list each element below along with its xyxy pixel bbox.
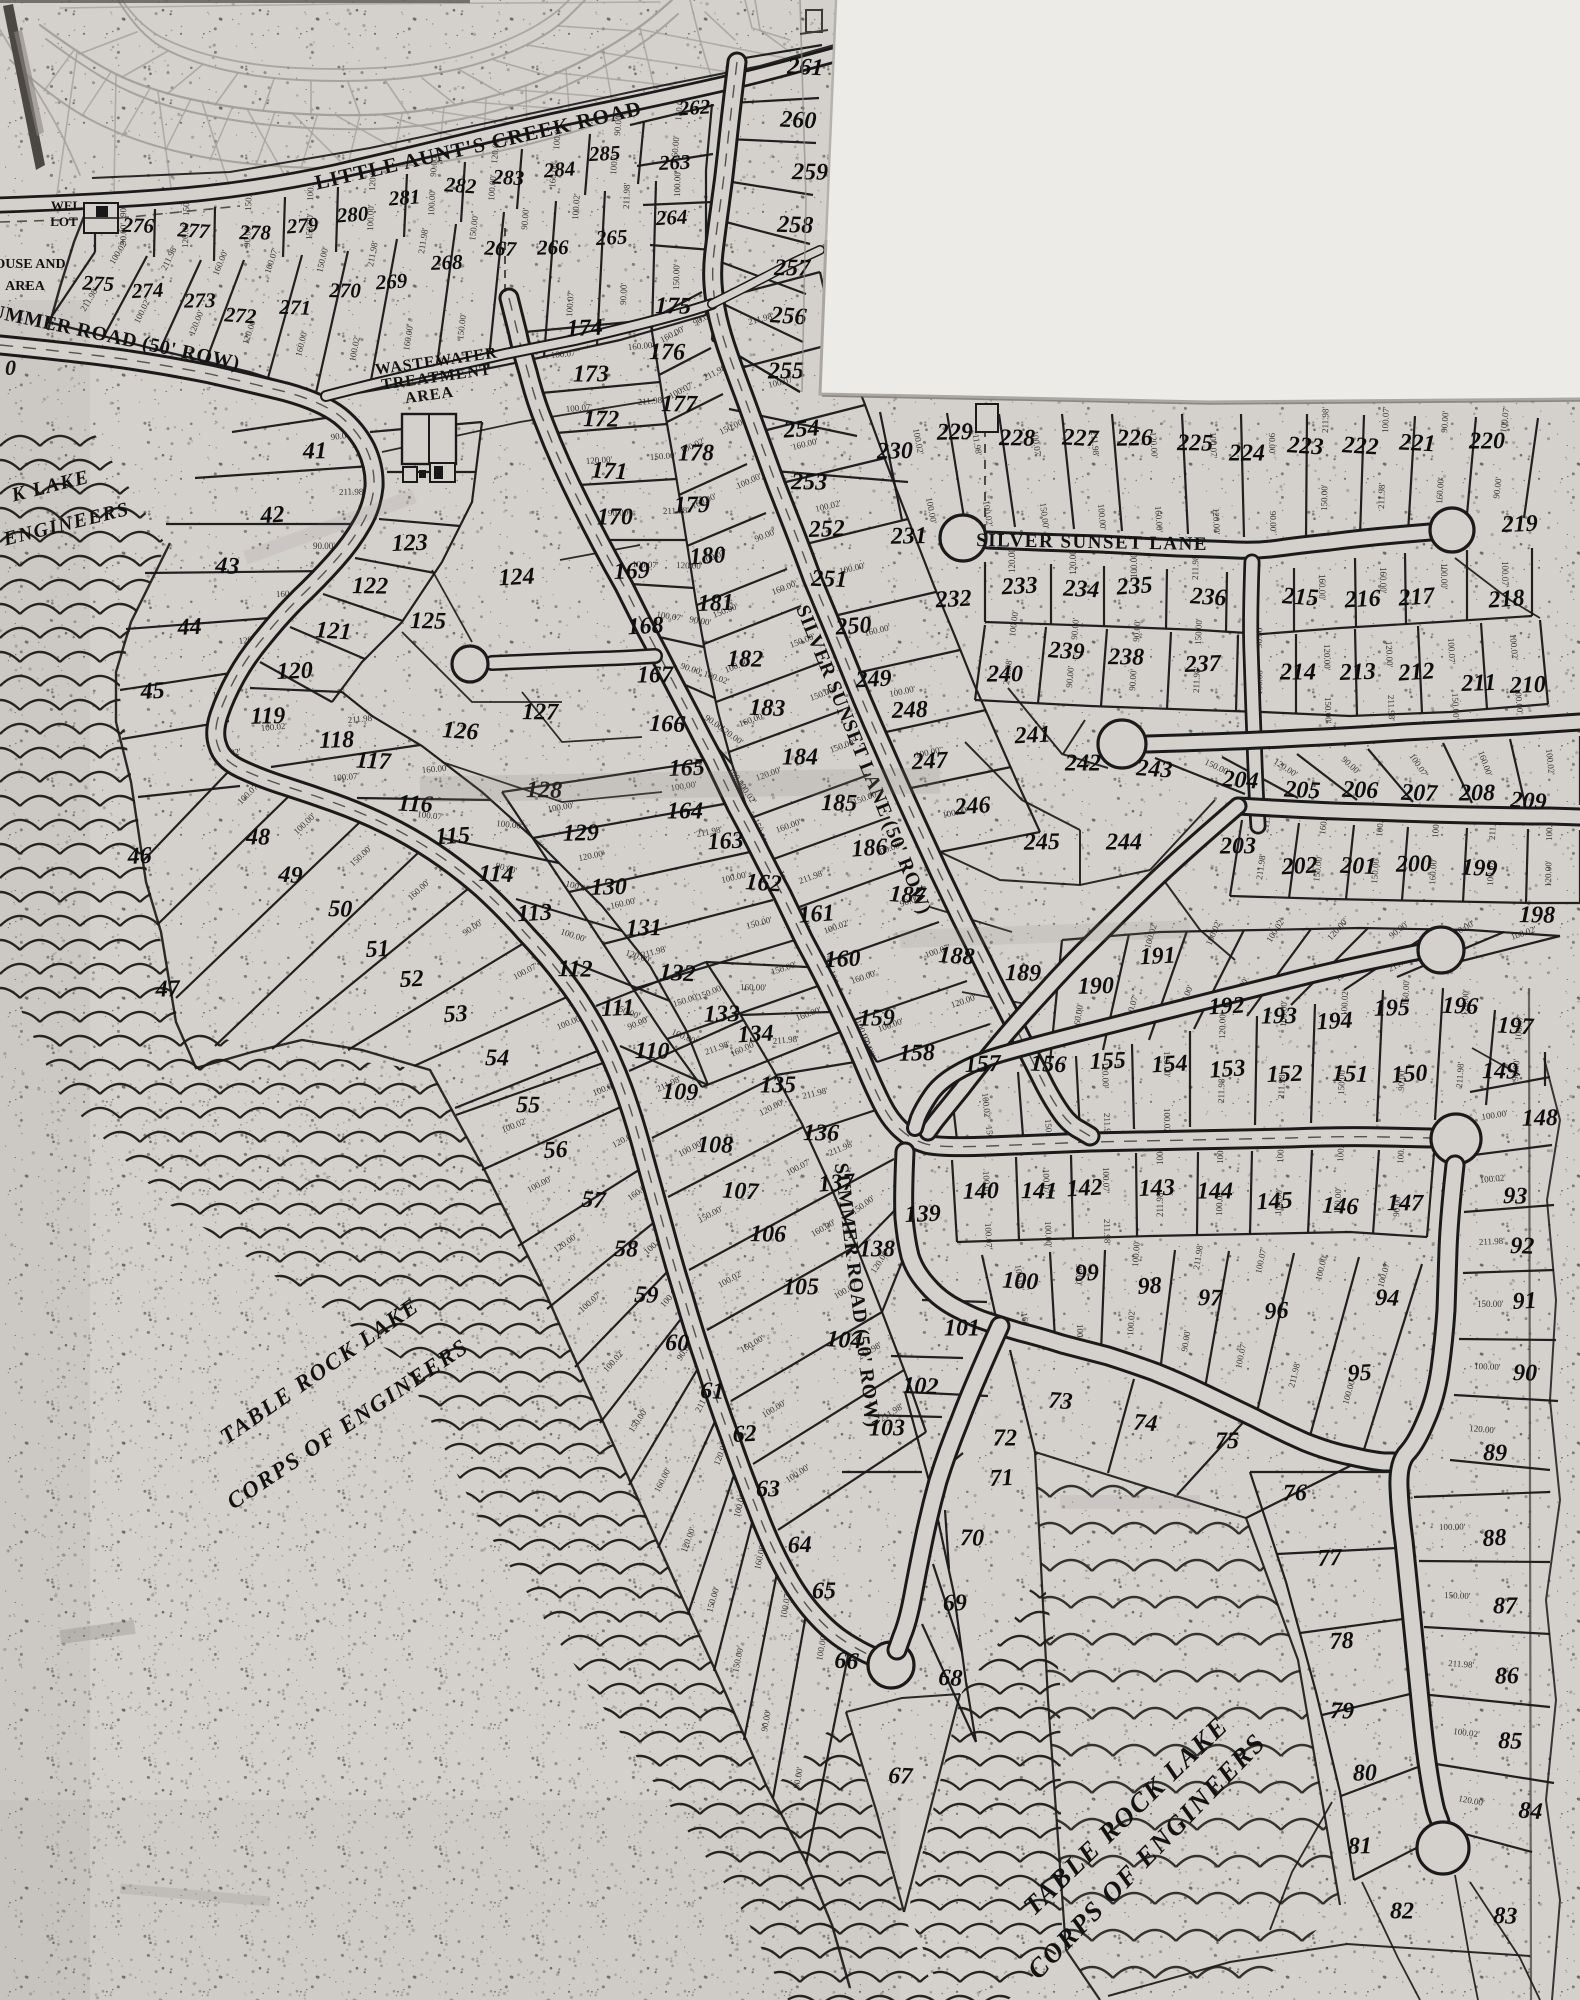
svg-text:141: 141 <box>1021 1178 1057 1205</box>
svg-text:97: 97 <box>1198 1285 1223 1311</box>
svg-text:184: 184 <box>782 744 818 770</box>
svg-text:65: 65 <box>812 1578 836 1604</box>
svg-text:86: 86 <box>1495 1663 1519 1689</box>
svg-text:211.98': 211.98' <box>1102 1219 1112 1246</box>
svg-text:139: 139 <box>904 1201 941 1228</box>
svg-text:100.02': 100.02' <box>1125 1309 1137 1336</box>
svg-text:100.00': 100.00' <box>1043 1221 1054 1248</box>
svg-text:108: 108 <box>697 1132 733 1159</box>
svg-text:273: 273 <box>183 288 216 313</box>
svg-text:227: 227 <box>1061 424 1100 452</box>
svg-text:180: 180 <box>689 542 727 570</box>
svg-text:211.98': 211.98' <box>1386 695 1397 722</box>
svg-text:279: 279 <box>285 212 320 238</box>
svg-text:248: 248 <box>890 697 928 724</box>
svg-text:254: 254 <box>782 415 821 444</box>
svg-text:266: 266 <box>536 235 569 260</box>
svg-text:175: 175 <box>655 293 691 320</box>
svg-text:160.00': 160.00' <box>740 982 767 992</box>
svg-text:150.00': 150.00' <box>649 450 676 462</box>
svg-text:167: 167 <box>637 662 674 688</box>
svg-text:211.98': 211.98' <box>1448 1658 1475 1670</box>
svg-text:169: 169 <box>613 558 650 585</box>
svg-text:115: 115 <box>435 823 471 851</box>
svg-text:200: 200 <box>1395 851 1432 878</box>
svg-text:98: 98 <box>1137 1273 1162 1300</box>
svg-text:197: 197 <box>1497 1012 1535 1040</box>
svg-text:112: 112 <box>558 956 593 983</box>
svg-text:222: 222 <box>1341 432 1380 461</box>
svg-text:87: 87 <box>1493 1593 1518 1619</box>
svg-text:182: 182 <box>727 646 763 673</box>
svg-text:106: 106 <box>750 1221 786 1248</box>
svg-text:96: 96 <box>1264 1298 1290 1326</box>
svg-text:268: 268 <box>430 250 464 275</box>
svg-text:146: 146 <box>1322 1192 1359 1220</box>
svg-text:131: 131 <box>626 915 662 942</box>
svg-text:209: 209 <box>1509 787 1548 816</box>
svg-text:125: 125 <box>410 608 446 635</box>
svg-text:252: 252 <box>807 516 845 543</box>
svg-text:107: 107 <box>722 1177 760 1205</box>
svg-text:151: 151 <box>1332 1061 1369 1088</box>
svg-text:83: 83 <box>1493 1903 1518 1930</box>
svg-text:66: 66 <box>834 1648 860 1676</box>
svg-text:77: 77 <box>1317 1545 1343 1572</box>
svg-text:144: 144 <box>1197 1178 1233 1204</box>
svg-text:238: 238 <box>1107 644 1144 671</box>
svg-text:224: 224 <box>1228 440 1265 466</box>
svg-text:67: 67 <box>888 1763 914 1790</box>
svg-text:243: 243 <box>1135 755 1174 784</box>
svg-text:75: 75 <box>1215 1428 1239 1454</box>
svg-text:198: 198 <box>1519 902 1555 929</box>
svg-text:204: 204 <box>1221 766 1260 795</box>
svg-text:217: 217 <box>1397 583 1437 612</box>
svg-text:150: 150 <box>1391 1060 1429 1088</box>
svg-text:73: 73 <box>1048 1388 1074 1416</box>
svg-text:150.00': 150.00' <box>1323 697 1333 724</box>
svg-text:126: 126 <box>442 717 480 745</box>
svg-text:90.00': 90.00' <box>1267 433 1277 455</box>
svg-text:120.00': 120.00' <box>1211 508 1222 535</box>
svg-text:152: 152 <box>1266 1061 1303 1088</box>
svg-text:63: 63 <box>756 1476 780 1502</box>
svg-text:117: 117 <box>355 748 392 776</box>
svg-text:85: 85 <box>1498 1728 1523 1755</box>
svg-text:269: 269 <box>374 268 409 294</box>
svg-text:192: 192 <box>1208 992 1245 1020</box>
svg-text:WEL: WEL <box>51 198 82 213</box>
svg-text:145: 145 <box>1256 1187 1293 1215</box>
svg-text:211.98': 211.98' <box>1376 482 1387 509</box>
svg-text:147: 147 <box>1387 1190 1424 1217</box>
svg-text:166: 166 <box>649 711 686 738</box>
svg-text:191: 191 <box>1139 942 1176 970</box>
svg-text:94: 94 <box>1375 1285 1400 1312</box>
svg-text:189: 189 <box>1005 960 1041 987</box>
svg-text:250: 250 <box>834 612 873 641</box>
svg-text:119: 119 <box>250 703 285 730</box>
svg-text:122: 122 <box>352 573 388 600</box>
svg-text:135: 135 <box>760 1072 796 1098</box>
svg-text:55: 55 <box>516 1092 540 1118</box>
svg-text:263: 263 <box>658 150 691 175</box>
svg-text:44: 44 <box>176 614 202 641</box>
svg-text:162: 162 <box>745 869 783 897</box>
svg-text:99: 99 <box>1075 1260 1099 1286</box>
svg-text:82: 82 <box>1390 1898 1414 1924</box>
svg-text:60: 60 <box>665 1330 690 1357</box>
svg-text:120.00': 120.00' <box>1384 641 1395 668</box>
svg-text:176: 176 <box>649 339 685 366</box>
svg-text:79: 79 <box>1330 1698 1354 1724</box>
svg-text:100.07': 100.07' <box>1500 561 1510 588</box>
svg-text:90.00': 90.00' <box>1127 668 1139 691</box>
svg-text:154: 154 <box>1151 1050 1188 1078</box>
svg-text:100.07': 100.07' <box>1446 638 1457 665</box>
svg-text:150.00': 150.00' <box>1477 1299 1504 1309</box>
svg-text:199: 199 <box>1461 854 1498 882</box>
svg-text:136: 136 <box>803 1120 839 1147</box>
svg-text:284: 284 <box>542 156 576 182</box>
svg-text:52: 52 <box>399 966 424 993</box>
svg-text:155: 155 <box>1089 1048 1126 1075</box>
svg-text:140: 140 <box>963 1178 999 1205</box>
svg-text:149: 149 <box>1482 1058 1518 1085</box>
svg-text:OUSE AND: OUSE AND <box>0 257 66 272</box>
svg-text:220: 220 <box>1468 428 1505 454</box>
svg-text:219: 219 <box>1500 511 1538 538</box>
svg-text:160.00': 160.00' <box>1153 505 1165 532</box>
svg-text:158: 158 <box>899 1040 935 1067</box>
svg-text:233: 233 <box>1000 572 1038 600</box>
svg-text:239: 239 <box>1047 637 1086 666</box>
svg-text:100.00': 100.00' <box>426 189 437 216</box>
svg-text:70: 70 <box>960 1525 984 1551</box>
svg-text:48: 48 <box>245 824 270 850</box>
svg-text:274: 274 <box>130 278 164 304</box>
svg-text:270: 270 <box>328 278 361 303</box>
svg-text:89: 89 <box>1483 1440 1507 1466</box>
svg-text:255: 255 <box>767 358 804 384</box>
svg-text:160.00': 160.00' <box>1434 477 1446 504</box>
svg-text:225: 225 <box>1176 430 1213 457</box>
svg-text:109: 109 <box>662 1079 699 1106</box>
svg-text:183: 183 <box>749 695 786 722</box>
svg-text:88: 88 <box>1482 1525 1508 1553</box>
svg-text:267: 267 <box>483 235 518 261</box>
svg-text:172: 172 <box>583 406 619 433</box>
svg-text:178: 178 <box>678 440 714 466</box>
svg-text:134: 134 <box>737 1020 774 1048</box>
svg-text:245: 245 <box>1023 829 1060 856</box>
svg-text:174: 174 <box>566 315 603 342</box>
svg-text:211: 211 <box>1460 670 1497 697</box>
svg-text:265: 265 <box>594 225 628 251</box>
svg-text:159: 159 <box>859 1005 895 1032</box>
svg-text:161: 161 <box>798 900 836 928</box>
svg-text:80: 80 <box>1353 1760 1377 1786</box>
svg-text:150.00': 150.00' <box>671 263 681 290</box>
svg-text:120.00': 120.00' <box>1543 860 1553 887</box>
svg-text:202: 202 <box>1280 852 1318 880</box>
svg-text:215: 215 <box>1281 583 1320 612</box>
svg-text:92: 92 <box>1510 1233 1535 1260</box>
svg-text:203: 203 <box>1219 833 1256 859</box>
svg-text:95: 95 <box>1347 1360 1372 1387</box>
svg-text:0: 0 <box>5 355 16 380</box>
svg-text:91: 91 <box>1512 1288 1537 1315</box>
svg-text:47: 47 <box>154 976 181 1003</box>
svg-text:214: 214 <box>1279 659 1316 685</box>
svg-text:246: 246 <box>953 792 992 821</box>
svg-text:150.00': 150.00' <box>1444 1590 1471 1601</box>
svg-text:193: 193 <box>1261 1003 1297 1029</box>
svg-text:90.00': 90.00' <box>1131 619 1143 642</box>
svg-text:206: 206 <box>1341 777 1379 804</box>
svg-text:90: 90 <box>1513 1360 1537 1386</box>
svg-text:236: 236 <box>1189 583 1228 612</box>
svg-text:251: 251 <box>810 566 848 593</box>
svg-text:100.00': 100.00' <box>1439 563 1449 590</box>
svg-text:61: 61 <box>700 1378 725 1405</box>
svg-text:205: 205 <box>1283 776 1321 804</box>
svg-text:257: 257 <box>773 255 811 282</box>
svg-text:285: 285 <box>587 141 621 167</box>
svg-text:53: 53 <box>443 1001 468 1028</box>
svg-text:AREA: AREA <box>5 279 46 294</box>
svg-text:244: 244 <box>1105 829 1142 855</box>
svg-text:282: 282 <box>443 172 478 198</box>
svg-text:231: 231 <box>890 523 927 550</box>
svg-text:93: 93 <box>1503 1183 1528 1210</box>
svg-text:120.00': 120.00' <box>1322 644 1332 671</box>
svg-text:261: 261 <box>786 53 824 81</box>
svg-text:41: 41 <box>302 438 327 464</box>
svg-text:208: 208 <box>1458 780 1495 806</box>
svg-text:100.00': 100.00' <box>1439 1522 1466 1532</box>
svg-text:102: 102 <box>902 1372 939 1400</box>
svg-text:100.07': 100.07' <box>983 1223 994 1250</box>
svg-text:150.00': 150.00' <box>1450 693 1461 720</box>
svg-text:237: 237 <box>1183 651 1222 678</box>
svg-text:150.00': 150.00' <box>1193 618 1204 645</box>
svg-text:190: 190 <box>1078 973 1114 1000</box>
svg-text:143: 143 <box>1138 1175 1175 1202</box>
svg-text:129: 129 <box>563 820 599 847</box>
svg-text:160: 160 <box>824 945 861 973</box>
svg-text:124: 124 <box>498 563 535 591</box>
svg-text:156: 156 <box>1030 1050 1067 1078</box>
svg-text:201: 201 <box>1339 853 1377 880</box>
svg-text:230: 230 <box>876 438 913 465</box>
svg-text:164: 164 <box>667 798 703 824</box>
svg-text:196: 196 <box>1442 993 1479 1020</box>
svg-text:278: 278 <box>238 220 271 245</box>
svg-text:90.00': 90.00' <box>1069 617 1081 640</box>
svg-text:71: 71 <box>989 1465 1014 1492</box>
svg-text:133: 133 <box>704 1001 740 1028</box>
svg-text:64: 64 <box>787 1532 812 1559</box>
svg-text:264: 264 <box>654 205 688 231</box>
svg-text:148: 148 <box>1522 1105 1558 1132</box>
svg-text:228: 228 <box>998 425 1035 452</box>
svg-text:271: 271 <box>278 295 311 320</box>
svg-text:81: 81 <box>1348 1833 1372 1859</box>
svg-text:171: 171 <box>591 457 628 485</box>
svg-text:181: 181 <box>697 590 734 617</box>
svg-text:58: 58 <box>614 1236 638 1262</box>
svg-text:57: 57 <box>581 1187 608 1215</box>
svg-text:210: 210 <box>1508 672 1546 699</box>
svg-text:168: 168 <box>627 612 664 640</box>
svg-text:211.98': 211.98' <box>1479 1236 1506 1247</box>
svg-text:111: 111 <box>601 995 635 1022</box>
svg-text:51: 51 <box>365 936 390 963</box>
svg-text:277: 277 <box>176 217 212 243</box>
svg-text:211.98': 211.98' <box>1320 406 1330 433</box>
svg-text:45: 45 <box>139 678 165 705</box>
svg-text:229: 229 <box>936 419 973 446</box>
svg-text:179: 179 <box>674 492 710 519</box>
svg-text:213: 213 <box>1338 659 1376 686</box>
svg-text:212: 212 <box>1397 658 1436 687</box>
svg-text:258: 258 <box>776 212 814 239</box>
svg-text:SILVER SUNSET LANE: SILVER SUNSET LANE <box>976 530 1208 555</box>
svg-text:221: 221 <box>1398 429 1436 457</box>
svg-text:218: 218 <box>1487 585 1526 614</box>
svg-text:62: 62 <box>732 1421 757 1448</box>
svg-text:113: 113 <box>517 900 553 928</box>
svg-text:101: 101 <box>944 1315 980 1341</box>
svg-text:260: 260 <box>779 106 817 134</box>
svg-text:56: 56 <box>543 1137 568 1164</box>
svg-text:90.00': 90.00' <box>618 282 629 305</box>
svg-text:84: 84 <box>1518 1798 1544 1826</box>
svg-text:283: 283 <box>491 164 525 190</box>
svg-text:259: 259 <box>791 159 828 186</box>
svg-text:226: 226 <box>1116 425 1153 452</box>
svg-text:100.00': 100.00' <box>1130 1240 1142 1267</box>
svg-text:280: 280 <box>335 201 370 227</box>
svg-text:132: 132 <box>659 959 696 987</box>
svg-text:LOT: LOT <box>50 214 78 229</box>
svg-text:216: 216 <box>1343 585 1381 613</box>
svg-text:256: 256 <box>769 302 808 331</box>
svg-text:78: 78 <box>1329 1628 1354 1655</box>
svg-text:157: 157 <box>964 1051 1002 1078</box>
svg-text:242: 242 <box>1064 750 1101 776</box>
svg-text:130: 130 <box>591 874 627 901</box>
svg-text:72: 72 <box>993 1425 1017 1451</box>
svg-text:76: 76 <box>1283 1480 1307 1506</box>
svg-text:120: 120 <box>276 658 313 685</box>
svg-text:253: 253 <box>790 469 827 496</box>
svg-text:50: 50 <box>328 896 353 923</box>
svg-text:90.00': 90.00' <box>1439 410 1451 433</box>
svg-text:142: 142 <box>1066 1174 1103 1202</box>
svg-text:46: 46 <box>126 843 152 870</box>
svg-text:100.07': 100.07' <box>564 290 576 317</box>
svg-text:281: 281 <box>387 184 421 210</box>
svg-text:241: 241 <box>1013 721 1051 749</box>
svg-text:69: 69 <box>943 1590 967 1616</box>
svg-text:223: 223 <box>1286 432 1325 461</box>
svg-text:114: 114 <box>478 861 514 888</box>
svg-text:150.00': 150.00' <box>1319 484 1329 511</box>
svg-text:235: 235 <box>1115 572 1154 601</box>
svg-text:173: 173 <box>573 361 609 387</box>
svg-text:90.00': 90.00' <box>1064 665 1076 688</box>
svg-text:54: 54 <box>485 1045 509 1071</box>
svg-text:207: 207 <box>1400 780 1439 807</box>
svg-text:100.07': 100.07' <box>1380 406 1391 433</box>
svg-text:100.02': 100.02' <box>570 193 582 220</box>
svg-text:234: 234 <box>1062 575 1100 603</box>
svg-text:272: 272 <box>223 302 258 328</box>
svg-text:262: 262 <box>677 94 712 120</box>
svg-text:275: 275 <box>81 270 115 296</box>
svg-text:211.98': 211.98' <box>621 182 632 209</box>
svg-text:211.98': 211.98' <box>1454 1061 1466 1088</box>
svg-text:100.00': 100.00' <box>1474 1361 1501 1372</box>
svg-text:276: 276 <box>121 213 155 238</box>
svg-text:177: 177 <box>661 391 698 418</box>
svg-text:118: 118 <box>319 727 355 754</box>
svg-text:43: 43 <box>214 553 240 580</box>
svg-text:249: 249 <box>854 665 892 693</box>
svg-text:42: 42 <box>259 502 286 530</box>
svg-text:240: 240 <box>986 661 1023 687</box>
svg-text:74: 74 <box>1133 1410 1159 1438</box>
svg-text:68: 68 <box>938 1665 963 1692</box>
svg-text:90.00': 90.00' <box>1268 511 1278 533</box>
svg-text:170: 170 <box>597 504 633 530</box>
svg-text:163: 163 <box>707 827 744 855</box>
svg-text:195: 195 <box>1374 995 1410 1022</box>
svg-text:105: 105 <box>783 1274 819 1300</box>
svg-text:121: 121 <box>315 617 353 645</box>
svg-text:59: 59 <box>634 1282 659 1309</box>
svg-text:100: 100 <box>1002 1267 1039 1295</box>
svg-text:49: 49 <box>277 862 304 890</box>
svg-text:127: 127 <box>522 699 559 726</box>
svg-text:123: 123 <box>391 530 428 557</box>
svg-text:211.98': 211.98' <box>339 487 366 497</box>
svg-text:232: 232 <box>934 585 972 613</box>
svg-text:194: 194 <box>1316 1007 1353 1035</box>
svg-text:110: 110 <box>635 1038 670 1065</box>
svg-text:90.00': 90.00' <box>519 207 531 230</box>
svg-text:153: 153 <box>1209 1055 1247 1083</box>
svg-text:186: 186 <box>851 834 889 862</box>
